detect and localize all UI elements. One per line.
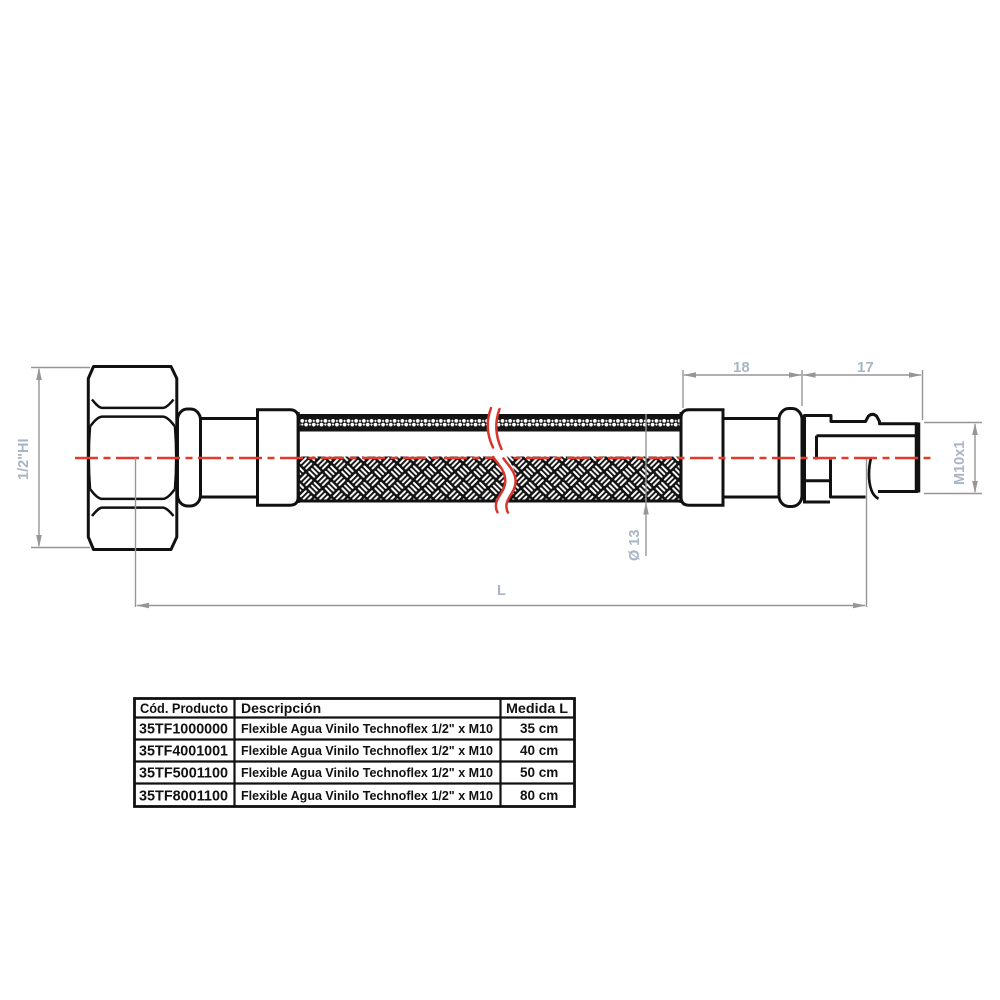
svg-text:35TF1000000: 35TF1000000 (139, 722, 228, 738)
svg-text:Medida L: Medida L (506, 700, 568, 716)
svg-text:Flexible Agua Vinilo Technofle: Flexible Agua Vinilo Technoflex 1/2" x M… (241, 721, 493, 736)
svg-text:35TF4001001: 35TF4001001 (139, 744, 228, 760)
svg-text:17: 17 (857, 359, 874, 376)
svg-text:50 cm: 50 cm (520, 765, 558, 780)
svg-text:Flexible Agua Vinilo Technofle: Flexible Agua Vinilo Technoflex 1/2" x M… (241, 788, 493, 803)
svg-text:L: L (497, 583, 506, 599)
svg-text:Ø 13: Ø 13 (627, 530, 643, 561)
svg-text:1/2"HI: 1/2"HI (16, 438, 32, 480)
svg-text:40 cm: 40 cm (520, 743, 558, 758)
svg-text:80 cm: 80 cm (520, 788, 558, 803)
svg-text:Flexible Agua Vinilo Technofle: Flexible Agua Vinilo Technoflex 1/2" x M… (241, 743, 493, 758)
svg-text:Descripción: Descripción (241, 700, 321, 716)
svg-text:35TF5001100: 35TF5001100 (139, 766, 228, 782)
svg-text:Flexible Agua Vinilo Technofle: Flexible Agua Vinilo Technoflex 1/2" x M… (241, 765, 493, 780)
svg-text:35 cm: 35 cm (520, 721, 558, 736)
svg-text:Cód. Producto: Cód. Producto (140, 700, 228, 716)
svg-text:35TF8001100: 35TF8001100 (139, 789, 228, 805)
svg-text:M10x1: M10x1 (952, 441, 968, 485)
svg-text:18: 18 (733, 359, 750, 376)
